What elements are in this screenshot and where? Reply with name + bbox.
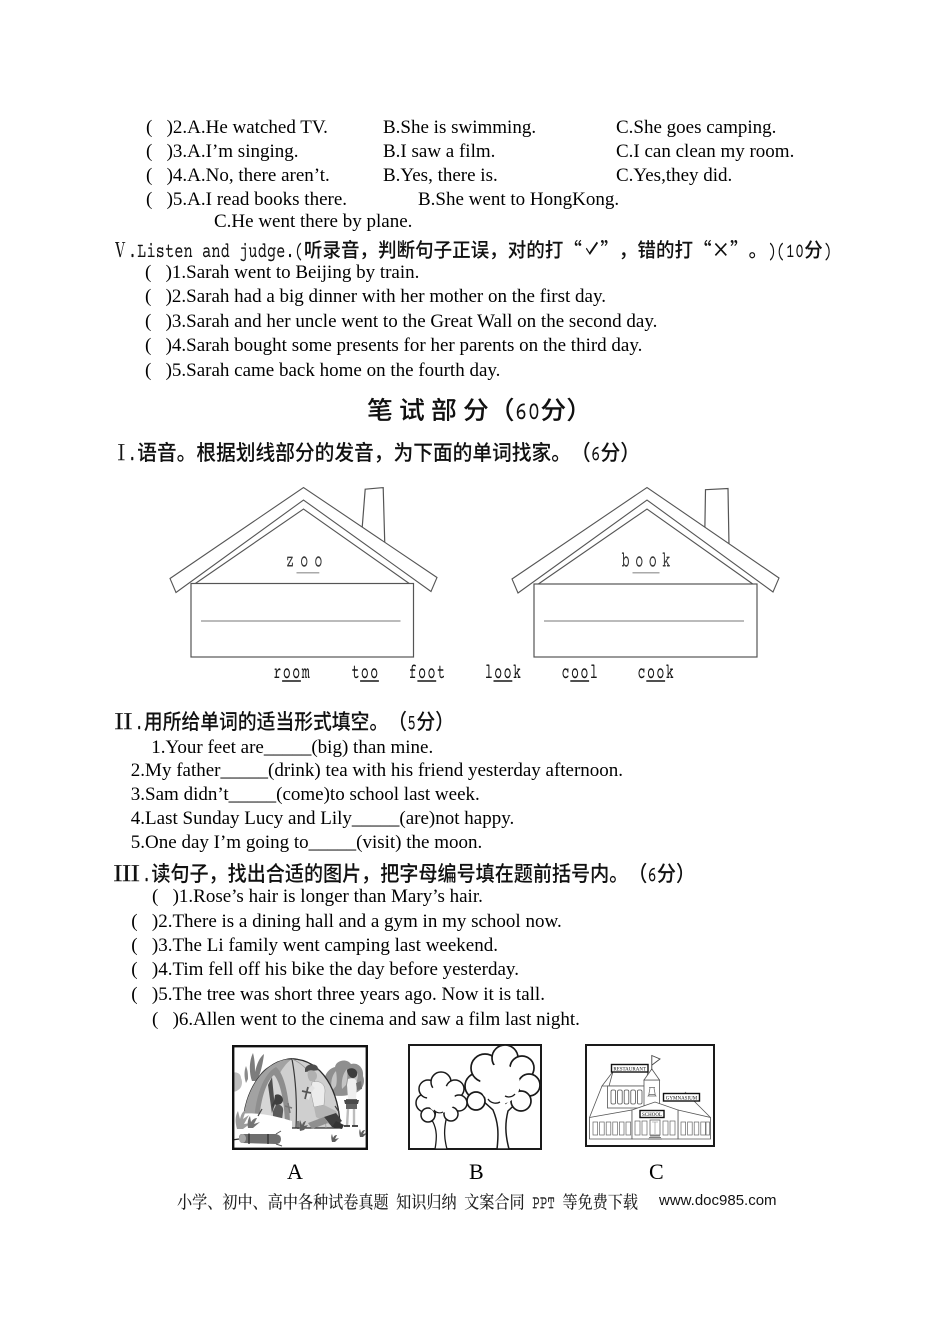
svg-text:GYMNASIUM: GYMNASIUM [666, 1096, 698, 1101]
svg-text:RESTAURANT: RESTAURANT [613, 1067, 646, 1072]
svg-text:SCHOOL: SCHOOL [642, 1113, 662, 1118]
